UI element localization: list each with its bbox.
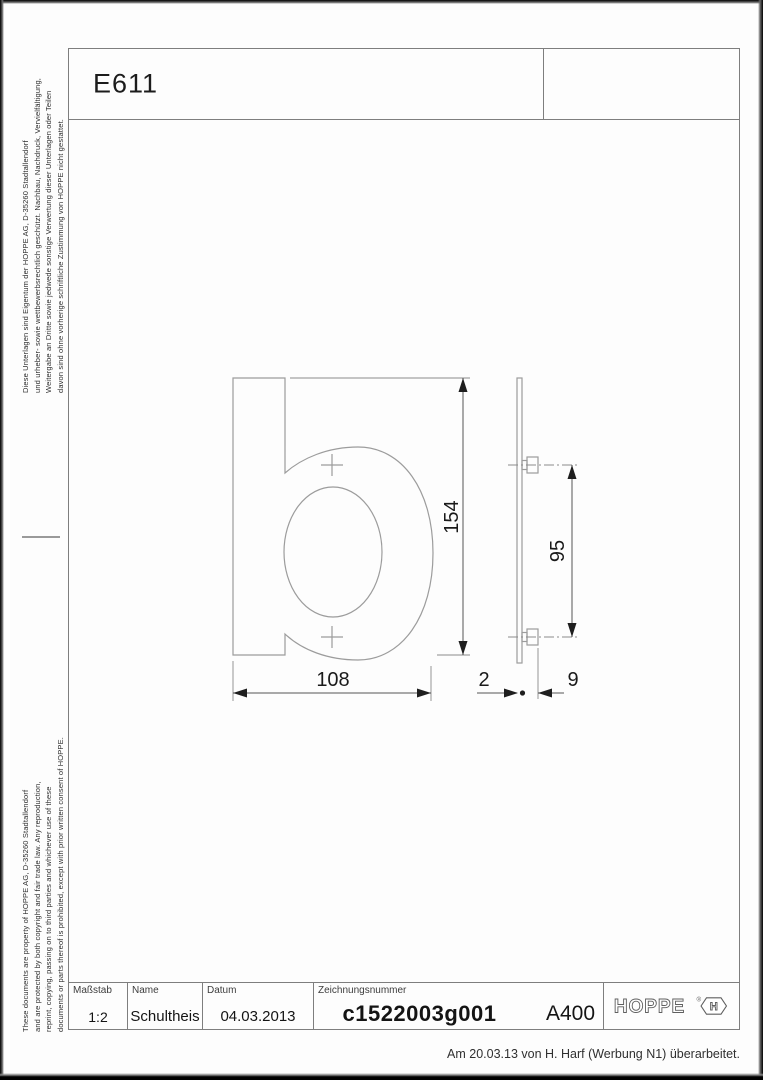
letter-b-counter-hole (284, 487, 382, 617)
dimension-dot (520, 690, 525, 695)
arrowhead-right-icon (417, 689, 431, 698)
arrowhead-left-icon (538, 689, 552, 698)
dimension-pin-spacing: 95 (547, 465, 577, 637)
dimension-pin-spacing-label: 95 (547, 540, 569, 562)
dimension-pin-length-label: 9 (567, 669, 578, 691)
dimension-thickness-label: 2 (478, 669, 489, 691)
dimension-width-label: 108 (316, 669, 349, 691)
dimension-width: 108 (233, 661, 431, 701)
letter-b-outer-contour (233, 378, 433, 660)
revision-note: Am 20.03.13 von H. Harf (Werbung N1) übe… (0, 1047, 740, 1061)
arrowhead-up-icon (568, 465, 577, 479)
side-view (508, 378, 580, 663)
plate-profile (517, 378, 522, 663)
dimension-height-label: 154 (441, 500, 463, 533)
arrowhead-right-icon (504, 689, 518, 698)
arrowhead-down-icon (568, 623, 577, 637)
mounting-hole-cross-bottom (321, 626, 343, 648)
front-view-letter-b (233, 378, 433, 660)
dimension-thickness-and-pin-length: 2 9 (477, 648, 579, 699)
arrowhead-down-icon (459, 641, 468, 655)
drawing-sheet: Diese Unterlagen sind Eigentum der HOPPE… (0, 0, 763, 1080)
technical-drawing: 154 108 (0, 0, 763, 1080)
arrowhead-left-icon (233, 689, 247, 698)
arrowhead-up-icon (459, 378, 468, 392)
mounting-hole-cross-top (321, 454, 343, 476)
